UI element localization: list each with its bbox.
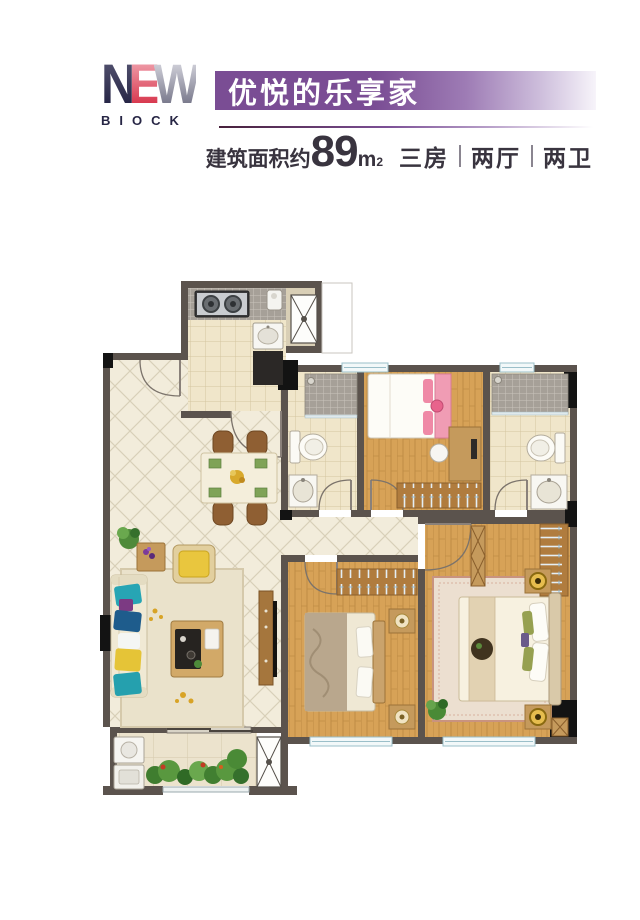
- spec-separator: [531, 145, 533, 167]
- pillow: [521, 633, 529, 647]
- window: [310, 737, 392, 746]
- bed: [305, 613, 385, 711]
- nightstand: [389, 705, 415, 729]
- pillow: [113, 672, 142, 697]
- spec-separator: [459, 145, 461, 167]
- sink-icon: [289, 475, 317, 507]
- desk-chair: [430, 444, 448, 462]
- title-banner: 优悦的乐享家: [215, 71, 596, 110]
- duct-icon: [291, 295, 317, 343]
- wardrobe: [337, 569, 417, 595]
- toilet-icon: [527, 433, 565, 463]
- balcony-railing: [163, 787, 249, 792]
- dining-table: [201, 453, 277, 503]
- armchair: [173, 545, 215, 583]
- spec-bathrooms: 两卫: [543, 139, 593, 173]
- washing-machine-icon: [114, 737, 144, 763]
- dining-chair: [247, 431, 267, 455]
- floorplan-drawing: [85, 281, 597, 826]
- laundry-sink-icon: [114, 765, 144, 789]
- spec-livingrooms: 两厅: [471, 139, 521, 173]
- window: [500, 363, 534, 372]
- brand-logo: N E W BIOCK: [101, 57, 221, 128]
- spec-bedrooms: 三房: [399, 139, 449, 173]
- dining-chair: [213, 501, 233, 525]
- side-table: [137, 543, 165, 571]
- window: [342, 363, 388, 372]
- pillow: [119, 599, 133, 611]
- duct-icon: [257, 737, 281, 787]
- kitchen-base-cabinet: [253, 351, 283, 385]
- cabinet-x-icon: [471, 526, 485, 586]
- pillow: [114, 648, 141, 672]
- logo-letter-w: W: [154, 57, 196, 110]
- pillow: [356, 667, 373, 698]
- dining-chair: [247, 501, 267, 525]
- bed: [459, 593, 561, 705]
- pillow: [118, 633, 140, 649]
- bed: [368, 374, 451, 438]
- cabinet-x-icon: [552, 718, 568, 736]
- kettle-icon: [267, 290, 282, 310]
- area-unit: m: [358, 148, 377, 172]
- area-unit-exponent: 2: [376, 155, 383, 169]
- exterior-niche: [322, 283, 352, 353]
- wardrobe: [397, 483, 481, 508]
- pillow: [356, 626, 373, 657]
- window: [443, 737, 535, 746]
- shower-area: [492, 374, 568, 415]
- nightstand: [525, 705, 551, 729]
- logo-word: N E W: [101, 57, 207, 110]
- stove-icon: [195, 291, 249, 317]
- area-spec-line: 建筑面积约89m2 三房 两厅 两卫: [0, 133, 593, 173]
- area-label: 建筑面积约: [206, 143, 311, 173]
- dining-chair: [213, 431, 233, 455]
- coffee-table: [171, 621, 223, 677]
- area-value: 89: [311, 133, 358, 170]
- sink-icon: [531, 475, 567, 509]
- shower-area: [305, 374, 357, 418]
- banner-title: 优悦的乐享家: [215, 70, 420, 112]
- pillow: [113, 610, 142, 633]
- corridor-floor: [288, 517, 418, 555]
- kitchen-sink-icon: [253, 323, 283, 349]
- nightstand: [525, 569, 551, 593]
- floorplan-poster: N E W BIOCK 优悦的乐享家 建筑面积约89m2 三房 两厅 两卫: [0, 0, 640, 920]
- nightstand: [389, 609, 415, 633]
- tv-icon: [273, 601, 277, 677]
- sofa: [111, 575, 147, 697]
- tv-console: [259, 591, 277, 685]
- logo-divider-line: [219, 126, 593, 128]
- room-specs: 三房 两厅 两卫: [399, 139, 593, 173]
- logo-letter-n: N: [101, 57, 132, 110]
- logo-subtext: BIOCK: [101, 113, 221, 128]
